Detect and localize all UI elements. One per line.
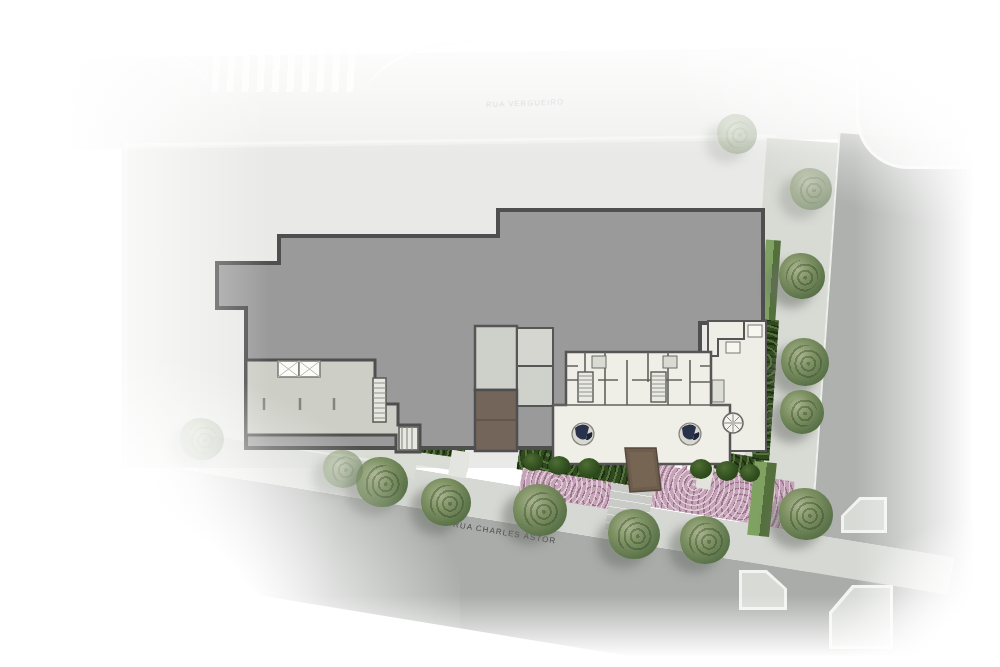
building-plan xyxy=(0,0,1000,667)
round-planter xyxy=(679,423,701,445)
tree xyxy=(779,488,833,540)
bush xyxy=(690,459,712,479)
round-planter xyxy=(572,423,594,445)
bush xyxy=(716,461,738,481)
spiral-stair xyxy=(723,413,743,433)
tree xyxy=(780,390,824,434)
tree xyxy=(680,516,730,564)
bush xyxy=(523,453,543,471)
unit-plan xyxy=(553,352,730,464)
tree xyxy=(779,253,825,299)
tree xyxy=(790,168,832,210)
bush xyxy=(578,458,600,478)
tree xyxy=(781,338,829,386)
bush xyxy=(548,456,570,475)
site-plan-rendering: RUA VERGUEIRO RUA CHARLES ASTOR xyxy=(0,0,1000,667)
tree xyxy=(180,418,224,460)
tree xyxy=(323,450,363,488)
tree xyxy=(717,114,757,154)
tree xyxy=(513,484,567,536)
tree xyxy=(421,478,471,526)
bush xyxy=(740,464,760,482)
center-roof xyxy=(475,326,517,390)
tree xyxy=(356,457,408,507)
tree xyxy=(608,509,660,559)
